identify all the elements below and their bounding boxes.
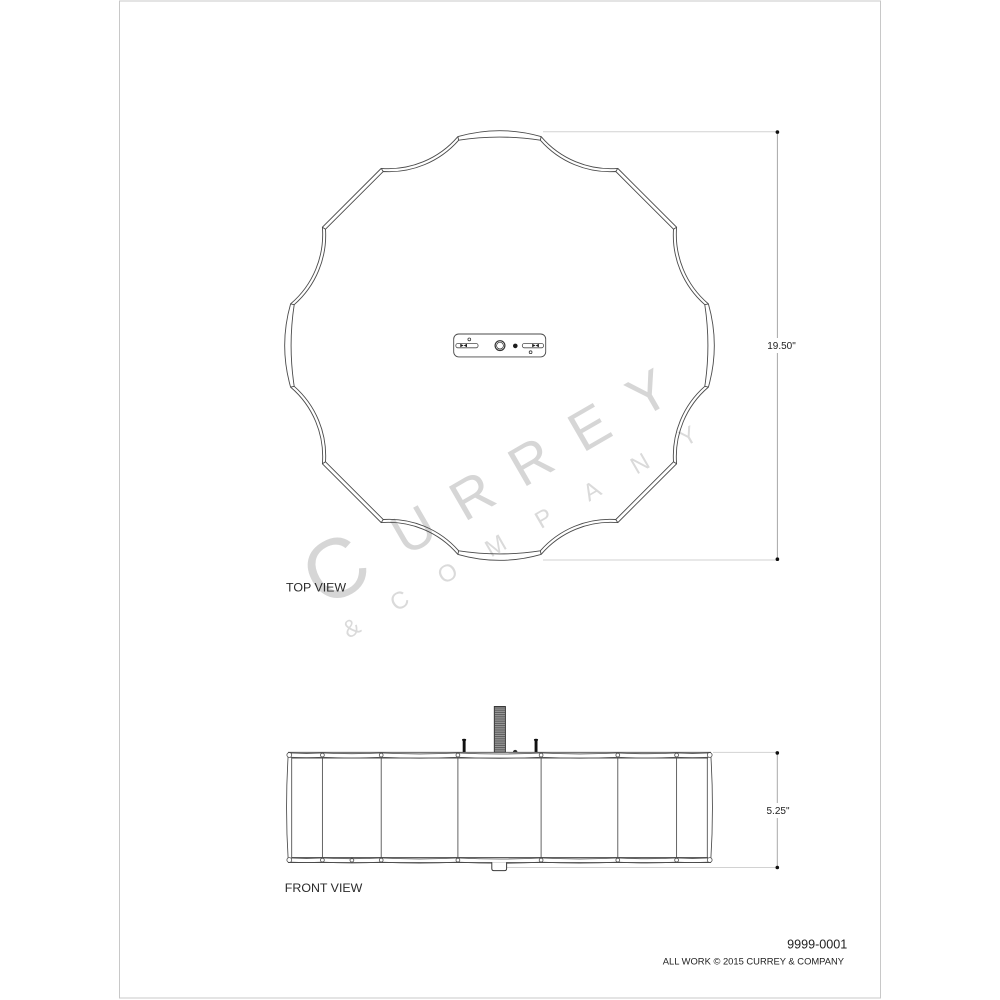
svg-text:9999-0001: 9999-0001 (787, 937, 847, 951)
svg-text:FRONT VIEW: FRONT VIEW (285, 881, 363, 895)
svg-text:5.25": 5.25" (766, 806, 789, 817)
svg-text:TOP VIEW: TOP VIEW (286, 581, 346, 595)
svg-text:ALL WORK © 2015 CURREY & COMPA: ALL WORK © 2015 CURREY & COMPANY (663, 956, 845, 967)
svg-text:19.50": 19.50" (767, 341, 796, 352)
